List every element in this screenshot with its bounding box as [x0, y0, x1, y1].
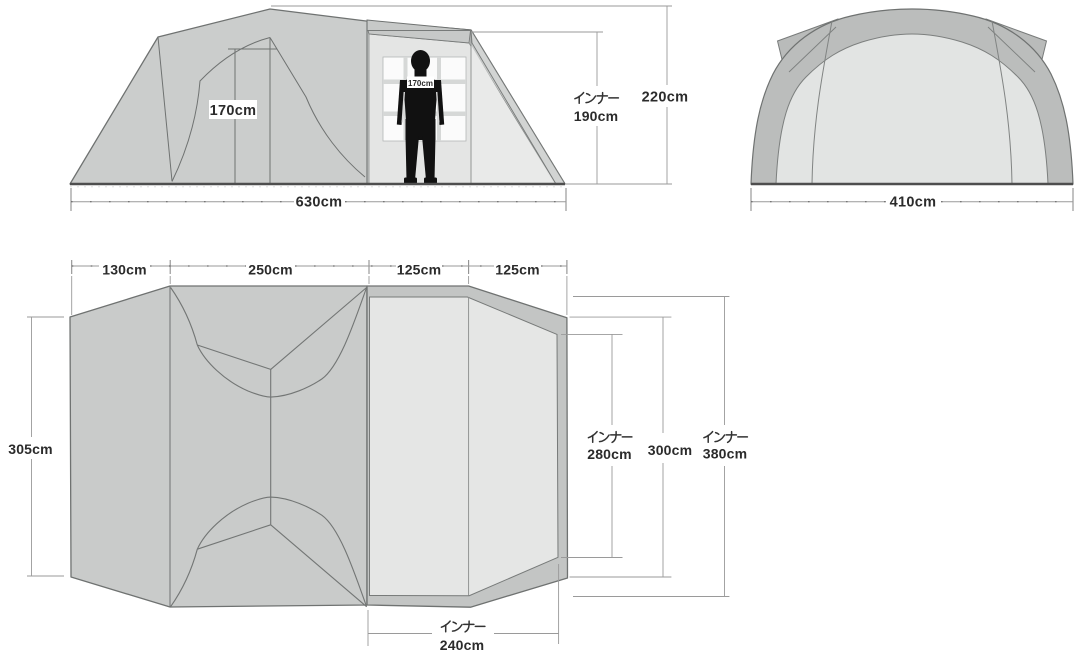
svg-text:130cm: 130cm [102, 262, 147, 278]
svg-text:125cm: 125cm [495, 262, 540, 278]
svg-text:170cm: 170cm [210, 103, 257, 119]
svg-text:220cm: 220cm [642, 90, 689, 106]
svg-text:380cm: 380cm [703, 446, 748, 462]
svg-text:190cm: 190cm [574, 108, 619, 124]
svg-text:300cm: 300cm [648, 442, 693, 458]
svg-text:125cm: 125cm [397, 262, 442, 278]
svg-text:410cm: 410cm [890, 195, 937, 211]
svg-text:240cm: 240cm [440, 637, 485, 653]
svg-text:280cm: 280cm [587, 446, 632, 462]
svg-text:305cm: 305cm [8, 441, 53, 457]
svg-text:250cm: 250cm [248, 262, 293, 278]
svg-text:630cm: 630cm [296, 195, 343, 211]
svg-text:170cm: 170cm [408, 79, 433, 88]
